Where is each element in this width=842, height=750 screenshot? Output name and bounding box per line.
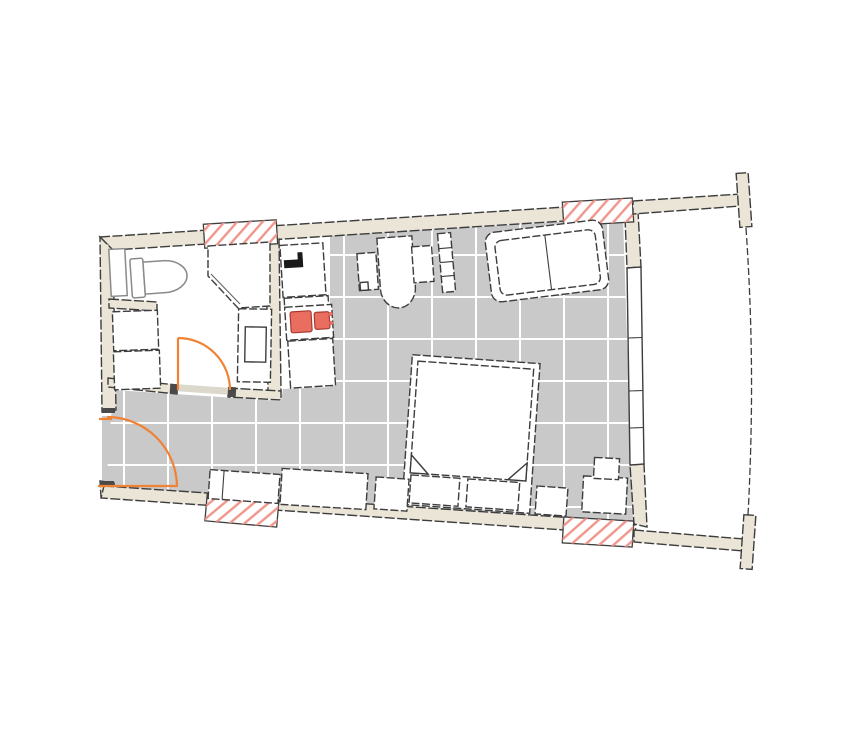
faucet-spout-icon — [297, 252, 302, 260]
floor-plan-svg — [0, 0, 842, 750]
bench-3 — [535, 486, 568, 516]
bath-door-threshold — [178, 384, 228, 394]
stove — [285, 304, 334, 340]
right-wall-window — [627, 267, 644, 465]
bathroom-radiator-shelf — [109, 249, 127, 297]
burner-right — [314, 312, 330, 330]
kitchenette — [280, 243, 337, 389]
desk-detail — [360, 282, 369, 291]
desk-right — [412, 245, 434, 282]
pillow-left — [409, 475, 460, 506]
sideboard — [280, 468, 368, 509]
kitchen-base-cabinet — [288, 338, 336, 388]
bench-2 — [374, 477, 409, 511]
balcony — [633, 173, 756, 570]
entrance-threshold — [102, 416, 115, 486]
shower — [208, 242, 270, 308]
bench-1 — [208, 470, 280, 504]
balcony-wall-top-cap — [736, 173, 752, 228]
balcony-railing — [746, 228, 752, 515]
toilet — [130, 255, 189, 298]
balcony-wall-bottom — [634, 530, 744, 551]
hatched-opening-bottom-right — [562, 517, 633, 547]
faucet-icon — [284, 259, 303, 268]
bed-blanket — [410, 361, 534, 481]
floor-plan-page — [0, 0, 842, 750]
double-bed — [402, 355, 540, 514]
kitchen-sink-counter — [280, 243, 326, 298]
vanity-sink — [237, 309, 271, 383]
bathroom — [109, 242, 272, 390]
pillow-right — [466, 479, 520, 511]
nightstand-object — [593, 457, 619, 479]
sofa — [484, 219, 610, 303]
burner-left — [290, 311, 312, 333]
balcony-wall-top — [633, 194, 741, 214]
washer-cabinet — [112, 310, 160, 390]
entrance-jamb-top — [102, 408, 115, 413]
interior-wall-bath-stub — [109, 299, 157, 311]
balcony-wall-bottom-cap — [740, 515, 756, 570]
bathroom-door-swing — [178, 338, 230, 390]
